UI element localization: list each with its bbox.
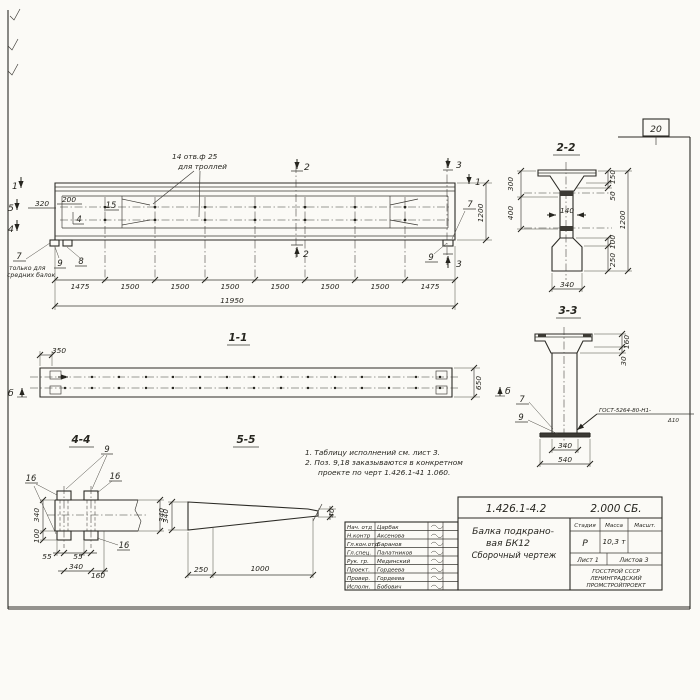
note-middle-beams-2: средних балок xyxy=(7,271,55,279)
sheet-number: Лист 1 xyxy=(576,557,599,564)
pos-label-15: 15 xyxy=(106,200,117,210)
dim-chain-5: 1500 xyxy=(321,282,340,291)
section-1-1-title: 1-1 xyxy=(229,332,248,344)
doc-code: 2.000 СБ. xyxy=(590,503,641,515)
sig-role-1: Н.контр xyxy=(347,534,371,540)
dim-50: 50 xyxy=(608,191,617,201)
section-1-1-view xyxy=(17,345,505,400)
pos-label-16-c: 16 xyxy=(119,540,130,550)
dim-650: 650 xyxy=(474,376,483,390)
sig-role-5: Проект. xyxy=(347,568,370,574)
page-number: 20 xyxy=(650,124,662,135)
dim-55-b: 55 xyxy=(73,552,83,561)
dim-250-s5: 250 xyxy=(194,565,208,574)
section-mark-5: 5 xyxy=(8,203,14,214)
dim-1200-section: 1200 xyxy=(618,210,627,229)
bearing-pad xyxy=(50,240,59,246)
drawing-title-line3: Сборочный чертеж xyxy=(472,550,557,560)
dim-340-left-s4: 340 xyxy=(32,508,41,522)
pos-label-8: 8 xyxy=(78,256,83,266)
sig-role-2: Гл.кон.отд xyxy=(347,542,378,548)
dim-340-section2: 340 xyxy=(560,280,574,289)
sig-name-4: Мединский xyxy=(377,559,411,565)
dim-150: 150 xyxy=(608,170,617,184)
weld-note-line1: ГОСТ-5264-80-Н1- xyxy=(599,408,651,414)
margin-check-marks xyxy=(8,9,20,75)
dim-chain-6: 1500 xyxy=(371,282,390,291)
callout-holes-line1: 14 отв.ф 25 xyxy=(172,152,218,161)
section-mark-3-top: 3 xyxy=(456,160,462,171)
dim-300: 300 xyxy=(506,177,515,191)
mass-value: 10,3 т xyxy=(602,537,626,546)
dim-30-section3: 30 xyxy=(619,356,628,366)
section-mark-3-bottom: 3 xyxy=(456,259,462,270)
note-middle-beams-1: только для xyxy=(9,265,46,272)
sheets-total: Листов 3 xyxy=(618,557,648,564)
pos-label-9-section4: 9 xyxy=(104,444,109,454)
section-mark-4: 4 xyxy=(8,224,14,235)
sig-name-0: Царбак xyxy=(377,525,399,531)
pos-label-7-section3: 7 xyxy=(519,394,525,404)
callout-holes-line2: для троллей xyxy=(177,162,227,171)
notes-line3: проекте по черт 1.426.1-41 1.060. xyxy=(318,468,450,477)
dim-total-11950: 11950 xyxy=(220,296,244,305)
dim-1200-elevation: 1200 xyxy=(476,203,485,222)
sheet-frame xyxy=(8,9,690,609)
section-mark-arrows xyxy=(17,158,469,268)
doc-number: 1.426.1-4.2 xyxy=(486,503,547,515)
mark-b-right: б xyxy=(505,386,511,397)
plan-outline xyxy=(40,368,452,397)
dim-chain-4: 1500 xyxy=(271,282,290,291)
sig-role-3: Гл.спец. xyxy=(347,551,371,557)
sig-role-6: Провер. xyxy=(347,576,370,582)
signature-marks xyxy=(431,525,443,589)
dim-chain-3: 1500 xyxy=(221,282,240,291)
section-5-5-outline xyxy=(188,502,318,530)
section-2-2-title: 2-2 xyxy=(557,142,576,154)
dim-250-section: 250 xyxy=(608,253,617,267)
dim-340-s5: 340 xyxy=(161,509,170,523)
stage-value: Р xyxy=(582,538,588,549)
org-line1: ГОССТРОЙ СССР xyxy=(592,568,640,575)
bearing-pad xyxy=(63,240,72,246)
notes-line1: 1. Таблицу исполнений см. лист 3. xyxy=(305,448,440,457)
scale-label: Масшт. xyxy=(634,523,656,529)
sig-role-7: Исполн. xyxy=(347,585,371,591)
org-line2: ЛЕНИНГРАДСКИЙ xyxy=(589,575,642,582)
pos-label-7: 7 xyxy=(16,251,22,261)
section-mark-1-left: 1 xyxy=(12,181,18,192)
dim-1000-s5: 1000 xyxy=(251,564,270,573)
section-mark-1-right: 1 xyxy=(475,177,481,188)
dim-chain-1: 1500 xyxy=(121,282,140,291)
dim-chain-0: 1475 xyxy=(71,282,90,291)
sig-name-7: Бобович xyxy=(377,585,402,591)
drawing-sheet: 20 14 отв.ф 25 для троллей 1 5 4 32 xyxy=(0,0,700,700)
dim-160-s4: 160 xyxy=(91,571,105,580)
section-mark-2-bottom: 2 xyxy=(303,249,309,260)
drawing-title-line2: вая БК12 xyxy=(486,538,530,549)
dim-chain-7: 1475 xyxy=(421,282,440,291)
drawing-canvas: 20 14 отв.ф 25 для троллей 1 5 4 32 xyxy=(0,0,700,700)
mass-label: Масса xyxy=(605,523,623,529)
dim-340-bottom-s4: 340 xyxy=(69,562,83,571)
dim-320: 320 xyxy=(35,199,49,208)
section-3-3-title: 3-3 xyxy=(559,305,578,317)
sig-name-1: Аксенова xyxy=(376,534,405,540)
section-3-3-view xyxy=(515,318,694,467)
pos-label-9-right: 9 xyxy=(428,252,433,262)
dim-160-section3: 160 xyxy=(622,335,631,349)
dim-540-section3: 540 xyxy=(558,455,572,464)
pos-label-16-b: 16 xyxy=(110,471,121,481)
dim-140: 140 xyxy=(560,206,574,215)
pos-label-4: 4 xyxy=(76,214,81,224)
plan-holes xyxy=(64,376,441,389)
dim-400: 400 xyxy=(506,206,515,220)
dim-40-s5: 40 xyxy=(327,508,336,518)
pos-label-16-a: 16 xyxy=(26,473,37,483)
pos-label-9: 9 xyxy=(57,258,62,268)
sig-role-0: Нач. отд xyxy=(347,525,372,531)
org-line3: ПРОМСТРОЙПРОЕКТ xyxy=(587,582,647,589)
stage-label: Стадия xyxy=(574,523,596,529)
dim-100-section: 100 xyxy=(608,235,617,249)
sig-name-3: Палатников xyxy=(377,551,412,557)
dim-200: 200 xyxy=(62,195,76,204)
sig-name-2: Баранов xyxy=(377,542,402,548)
section-4-4-title: 4-4 xyxy=(71,434,91,446)
mark-b-left: б xyxy=(8,388,14,399)
dim-chain-2: 1500 xyxy=(171,282,190,291)
weld-note-line2: Δ10 xyxy=(667,418,679,424)
sig-name-6: Гордеева xyxy=(377,576,405,582)
pos-label-9-section3: 9 xyxy=(518,412,523,422)
notes-line2: 2. Поз. 9,18 заказываются в конкретном xyxy=(305,458,463,467)
pos-label-7-right: 7 xyxy=(467,199,473,209)
dim-350: 350 xyxy=(52,346,66,355)
drawing-title-line1: Балка подкрано- xyxy=(472,526,554,537)
dim-55-a: 55 xyxy=(42,552,52,561)
dim-100-s4: 100 xyxy=(32,529,41,543)
dim-340-section3: 340 xyxy=(558,441,572,450)
section-5-5-title: 5-5 xyxy=(237,434,256,446)
sig-name-5: Гордеева xyxy=(377,568,405,574)
sig-role-4: Рук. гр. xyxy=(347,559,369,565)
section-mark-2-top: 2 xyxy=(304,162,310,173)
